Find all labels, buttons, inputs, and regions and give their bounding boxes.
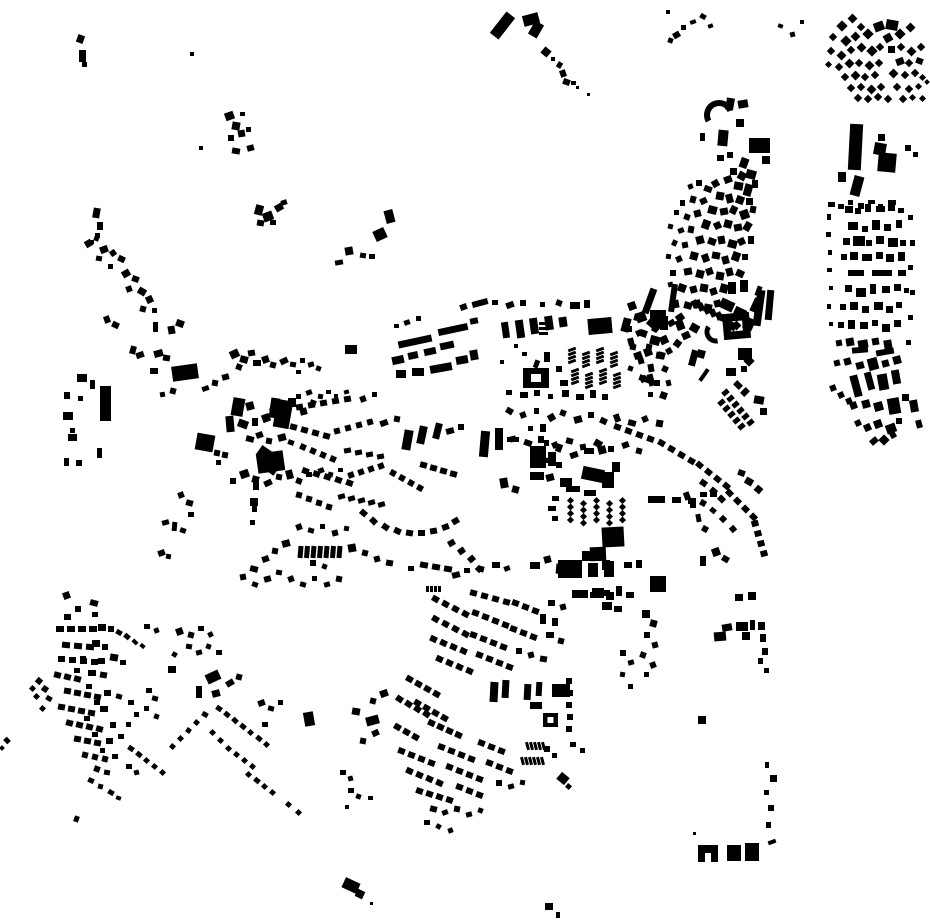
building-footprint bbox=[249, 565, 258, 573]
building-footprint bbox=[644, 672, 649, 677]
building-footprint bbox=[166, 554, 172, 560]
building-footprint bbox=[590, 390, 596, 398]
building-footprint bbox=[491, 595, 499, 603]
building-footprint bbox=[902, 394, 909, 401]
building-footprint bbox=[100, 706, 108, 712]
building-footprint bbox=[62, 642, 70, 649]
building-footprint bbox=[588, 563, 598, 577]
building-footprint bbox=[867, 357, 880, 371]
building-footprint bbox=[856, 288, 866, 297]
building-footprint bbox=[266, 438, 273, 445]
building-footprint bbox=[711, 251, 720, 259]
building-footprint bbox=[829, 286, 833, 290]
building-footprint bbox=[95, 725, 103, 733]
building-footprint bbox=[487, 743, 496, 751]
building-footprint bbox=[851, 32, 861, 42]
building-footprint bbox=[515, 320, 525, 339]
building-footprint bbox=[429, 635, 438, 643]
building-footprint bbox=[693, 209, 702, 218]
building-footprint bbox=[153, 627, 159, 633]
building-footprint bbox=[465, 667, 474, 675]
building-footprint bbox=[215, 705, 223, 713]
building-footprint bbox=[502, 598, 510, 606]
building-footprint bbox=[41, 685, 49, 693]
building-footprint bbox=[445, 763, 454, 771]
building-footprint bbox=[764, 790, 769, 795]
building-footprint bbox=[455, 783, 464, 791]
building-footprint bbox=[847, 84, 855, 92]
building-footprint bbox=[853, 236, 865, 246]
building-footprint bbox=[905, 85, 913, 93]
building-footprint bbox=[459, 303, 468, 311]
building-footprint bbox=[163, 354, 171, 361]
building-footprint bbox=[315, 365, 321, 371]
building-footprint bbox=[677, 283, 687, 293]
building-footprint bbox=[828, 250, 832, 255]
building-footprint bbox=[257, 219, 265, 226]
building-footprint bbox=[172, 522, 178, 531]
building-footprint bbox=[548, 600, 555, 606]
building-footprint bbox=[300, 358, 305, 363]
building-footprint bbox=[426, 586, 429, 592]
building-footprint bbox=[425, 775, 434, 783]
building-footprint bbox=[827, 304, 831, 309]
building-footprint bbox=[94, 739, 102, 746]
building-footprint bbox=[94, 693, 102, 700]
building-footprint bbox=[909, 94, 916, 101]
building-footprint bbox=[296, 403, 304, 410]
building-footprint bbox=[673, 339, 683, 349]
building-footprint bbox=[580, 748, 585, 753]
building-footprint bbox=[449, 470, 457, 478]
building-footprint bbox=[528, 426, 533, 431]
building-footprint bbox=[727, 410, 736, 418]
building-footprint bbox=[746, 418, 755, 426]
building-footprint bbox=[614, 606, 622, 612]
building-footprint bbox=[646, 344, 653, 351]
building-footprint bbox=[125, 285, 133, 293]
building-footprint bbox=[906, 23, 916, 33]
building-footprint bbox=[447, 539, 456, 548]
building-footprint bbox=[394, 416, 401, 423]
building-footprint bbox=[64, 614, 71, 620]
building-footprint bbox=[416, 425, 428, 444]
building-footprint bbox=[379, 419, 389, 427]
building-footprint bbox=[855, 208, 861, 214]
building-footprint bbox=[438, 586, 441, 592]
building-footprint bbox=[245, 401, 255, 411]
building-footprint bbox=[135, 351, 145, 359]
building-footprint bbox=[736, 119, 744, 127]
building-footprint bbox=[529, 318, 539, 335]
building-footprint bbox=[418, 530, 425, 536]
building-footprint bbox=[407, 351, 418, 360]
building-footprint bbox=[701, 253, 710, 263]
building-footprint bbox=[666, 254, 672, 260]
building-footprint bbox=[693, 832, 696, 835]
building-footprint bbox=[35, 677, 43, 685]
building-footprint bbox=[435, 655, 444, 663]
building-footprint bbox=[829, 322, 833, 326]
building-footprint bbox=[76, 460, 82, 466]
building-footprint bbox=[644, 632, 650, 638]
building-footprint bbox=[434, 586, 437, 592]
building-footprint bbox=[406, 529, 414, 536]
building-footprint bbox=[344, 526, 350, 532]
building-footprint bbox=[465, 811, 472, 817]
building-footprint bbox=[855, 59, 863, 67]
building-footprint bbox=[252, 504, 257, 512]
building-footprint bbox=[414, 680, 423, 689]
building-footprint bbox=[567, 516, 574, 523]
building-footprint bbox=[415, 787, 424, 795]
building-footprint bbox=[707, 23, 713, 28]
building-footprint bbox=[540, 424, 546, 432]
building-footprint bbox=[865, 61, 875, 71]
building-footprint bbox=[109, 653, 118, 661]
building-footprint bbox=[695, 460, 704, 469]
building-footprint bbox=[345, 345, 357, 354]
building-footprint bbox=[318, 394, 324, 400]
building-footprint bbox=[347, 543, 356, 552]
building-footprint bbox=[169, 743, 176, 750]
building-footprint bbox=[719, 283, 729, 294]
building-footprint bbox=[432, 422, 443, 439]
building-footprint bbox=[77, 374, 87, 382]
building-footprint bbox=[733, 380, 743, 390]
building-footprint bbox=[908, 315, 913, 320]
building-footprint bbox=[715, 191, 724, 200]
building-footprint bbox=[744, 476, 754, 486]
building-footprint bbox=[126, 764, 132, 769]
building-footprint bbox=[285, 469, 294, 480]
building-footprint bbox=[465, 787, 474, 795]
building-footprint bbox=[479, 431, 490, 458]
building-footprint bbox=[540, 302, 545, 307]
building-footprint bbox=[758, 622, 765, 630]
building-footprint bbox=[507, 783, 514, 789]
building-footprint bbox=[249, 763, 256, 770]
building-footprint bbox=[711, 853, 718, 862]
building-footprint bbox=[160, 392, 166, 398]
building-footprint bbox=[92, 207, 101, 218]
building-footprint bbox=[800, 20, 804, 24]
building-footprint bbox=[741, 366, 747, 372]
building-footprint bbox=[100, 748, 105, 753]
building-footprint bbox=[530, 472, 544, 480]
building-footprint bbox=[439, 341, 454, 351]
building-footprint bbox=[369, 697, 376, 704]
building-footprint bbox=[760, 408, 767, 415]
building-footprint bbox=[325, 503, 332, 510]
building-footprint bbox=[201, 385, 209, 392]
building-footprint bbox=[548, 506, 556, 511]
building-footprint bbox=[885, 423, 897, 435]
building-footprint bbox=[881, 359, 890, 368]
building-footprint bbox=[552, 516, 558, 521]
building-footprint bbox=[139, 305, 146, 312]
building-footprint bbox=[479, 635, 488, 643]
building-footprint bbox=[240, 574, 247, 581]
building-footprint bbox=[670, 270, 676, 276]
building-footprint bbox=[321, 563, 327, 569]
building-footprint bbox=[84, 691, 92, 698]
building-footprint bbox=[888, 46, 895, 53]
building-footprint bbox=[789, 31, 795, 37]
building-footprint bbox=[304, 546, 310, 558]
building-footprint bbox=[699, 479, 708, 488]
building-footprint bbox=[874, 93, 882, 101]
building-footprint bbox=[619, 503, 626, 510]
building-footprint bbox=[127, 745, 135, 753]
building-footprint bbox=[267, 705, 274, 711]
building-footprint bbox=[100, 386, 111, 421]
building-footprint bbox=[58, 703, 66, 710]
building-footprint bbox=[440, 714, 449, 723]
building-footprint bbox=[745, 843, 759, 861]
building-footprint bbox=[285, 801, 292, 808]
building-footprint bbox=[874, 302, 883, 310]
building-footprint bbox=[289, 423, 297, 431]
figure-ground-map bbox=[0, 0, 930, 924]
building-footprint bbox=[256, 450, 286, 474]
building-footprint bbox=[719, 515, 727, 523]
building-footprint bbox=[829, 384, 837, 392]
building-footprint bbox=[910, 290, 915, 295]
building-footprint bbox=[760, 634, 766, 642]
building-footprint bbox=[123, 633, 131, 641]
building-footprint bbox=[367, 465, 375, 473]
building-footprint bbox=[100, 671, 108, 678]
building-footprint bbox=[567, 714, 573, 720]
building-footprint bbox=[907, 47, 917, 57]
building-footprint bbox=[848, 320, 855, 329]
building-footprint bbox=[624, 427, 633, 435]
building-footprint bbox=[459, 647, 468, 655]
building-footprint bbox=[765, 762, 769, 768]
building-footprint bbox=[396, 370, 406, 378]
building-footprint bbox=[627, 659, 634, 665]
building-footprint bbox=[245, 771, 252, 778]
building-footprint bbox=[843, 357, 852, 366]
building-footprint bbox=[628, 684, 633, 689]
building-footprint bbox=[347, 495, 355, 502]
building-footprint bbox=[187, 631, 194, 638]
building-footprint bbox=[751, 520, 759, 528]
building-footprint bbox=[295, 523, 303, 531]
building-footprint bbox=[715, 271, 724, 280]
building-footprint bbox=[908, 215, 913, 220]
building-footprint bbox=[760, 550, 768, 558]
building-footprint bbox=[56, 626, 64, 632]
building-footprint bbox=[87, 777, 95, 784]
building-footprint bbox=[862, 226, 868, 232]
building-footprint bbox=[539, 327, 548, 330]
building-footprint bbox=[505, 407, 514, 416]
building-footprint bbox=[878, 134, 885, 141]
building-footprint bbox=[573, 415, 583, 424]
building-footprint bbox=[854, 419, 862, 427]
building-footprint bbox=[845, 337, 854, 346]
building-footprint bbox=[279, 357, 289, 366]
building-footprint bbox=[109, 249, 117, 257]
building-footprint bbox=[854, 94, 862, 102]
building-footprint bbox=[499, 643, 508, 651]
building-footprint bbox=[135, 751, 143, 759]
building-footprint bbox=[502, 680, 510, 698]
building-footprint bbox=[262, 722, 268, 727]
building-footprint bbox=[102, 644, 108, 650]
building-footprint bbox=[435, 779, 444, 787]
building-footprint bbox=[707, 237, 717, 246]
building-footprint bbox=[96, 256, 103, 262]
building-footprint bbox=[543, 555, 552, 564]
building-footprint bbox=[606, 506, 613, 513]
building-footprint bbox=[74, 668, 80, 673]
building-footprint bbox=[79, 50, 86, 62]
building-footprint bbox=[915, 57, 924, 65]
building-footprint bbox=[439, 467, 447, 475]
building-footprint bbox=[290, 362, 297, 368]
building-footprint bbox=[522, 352, 527, 356]
building-footprint bbox=[545, 473, 555, 482]
building-footprint bbox=[749, 138, 770, 153]
building-footprint bbox=[457, 547, 466, 556]
building-footprint bbox=[153, 713, 159, 719]
building-footprint bbox=[118, 734, 124, 739]
building-footprint bbox=[584, 448, 594, 454]
building-footprint bbox=[68, 434, 77, 441]
building-footprint bbox=[263, 741, 270, 748]
building-footprint bbox=[713, 221, 722, 230]
building-footprint bbox=[519, 629, 528, 637]
building-footprint bbox=[505, 301, 515, 309]
building-footprint bbox=[559, 409, 567, 417]
building-footprint bbox=[344, 447, 352, 453]
building-footprint bbox=[827, 214, 831, 220]
building-footprint bbox=[97, 783, 103, 789]
building-footprint bbox=[861, 399, 871, 409]
building-footprint bbox=[309, 447, 317, 455]
building-footprint bbox=[717, 130, 728, 147]
building-footprint bbox=[198, 626, 204, 631]
building-footprint bbox=[485, 759, 494, 767]
building-footprint bbox=[64, 392, 70, 399]
building-footprint bbox=[659, 335, 670, 346]
building-footprint bbox=[412, 368, 424, 376]
building-footprint bbox=[739, 209, 751, 221]
building-footprint bbox=[898, 252, 905, 261]
building-footprint bbox=[239, 723, 247, 731]
building-footprint bbox=[689, 19, 696, 25]
building-footprint bbox=[863, 423, 872, 432]
building-footprint bbox=[272, 548, 279, 555]
building-footprint bbox=[743, 183, 754, 197]
building-footprint bbox=[848, 222, 858, 230]
building-footprint bbox=[128, 700, 134, 705]
building-footprint bbox=[29, 685, 36, 692]
building-footprint bbox=[348, 788, 354, 793]
building-footprint bbox=[230, 478, 236, 484]
building-footprint bbox=[64, 687, 72, 694]
building-footprint bbox=[565, 437, 573, 445]
building-footprint bbox=[737, 171, 748, 182]
building-footprint bbox=[682, 242, 689, 249]
building-footprint bbox=[536, 682, 543, 696]
building-footprint bbox=[877, 83, 885, 91]
building-footprint bbox=[898, 270, 906, 276]
building-footprint bbox=[606, 519, 613, 526]
building-footprint bbox=[366, 418, 373, 425]
building-footprint bbox=[345, 479, 354, 487]
building-footprint bbox=[905, 145, 911, 151]
building-footprint bbox=[735, 594, 743, 601]
building-footprint bbox=[572, 590, 588, 598]
building-footprint bbox=[469, 631, 478, 639]
building-footprint bbox=[540, 655, 548, 662]
building-footprint bbox=[689, 251, 699, 261]
building-footprint bbox=[566, 486, 580, 492]
building-footprint bbox=[112, 754, 118, 759]
building-footprint bbox=[841, 254, 847, 260]
building-footprint bbox=[92, 732, 98, 737]
building-footprint bbox=[540, 614, 546, 624]
building-footprint bbox=[250, 520, 255, 525]
building-footprint bbox=[733, 223, 742, 231]
building-footprint bbox=[919, 95, 926, 102]
building-footprint bbox=[620, 650, 626, 656]
building-footprint bbox=[865, 204, 871, 212]
building-footprint bbox=[533, 359, 540, 368]
building-footprint bbox=[836, 20, 847, 31]
building-footprint bbox=[827, 47, 835, 55]
building-footprint bbox=[90, 380, 95, 389]
building-footprint bbox=[355, 793, 361, 799]
building-footprint bbox=[439, 639, 448, 647]
building-footprint bbox=[233, 751, 240, 758]
building-footprint bbox=[567, 497, 574, 504]
building-footprint bbox=[117, 255, 126, 263]
building-footprint bbox=[913, 152, 918, 157]
building-footprint bbox=[151, 763, 158, 770]
building-footprint bbox=[665, 347, 673, 355]
building-footprint bbox=[898, 208, 904, 213]
building-footprint bbox=[431, 709, 440, 718]
building-footprint bbox=[107, 789, 115, 796]
building-footprint bbox=[360, 738, 367, 745]
building-footprint bbox=[850, 252, 858, 260]
building-footprint bbox=[248, 349, 256, 356]
building-footprint bbox=[430, 527, 438, 534]
building-footprint bbox=[557, 637, 564, 644]
building-footprint bbox=[833, 359, 840, 366]
building-footprint bbox=[357, 497, 365, 504]
building-footprint bbox=[145, 295, 154, 304]
building-footprint bbox=[372, 392, 377, 397]
building-footprint bbox=[875, 59, 883, 67]
building-footprint bbox=[884, 95, 892, 103]
building-footprint bbox=[407, 479, 415, 487]
building-footprint bbox=[735, 269, 745, 279]
building-footprint bbox=[454, 806, 461, 813]
building-footprint bbox=[909, 399, 919, 412]
building-footprint bbox=[326, 390, 331, 394]
building-footprint bbox=[762, 648, 768, 655]
building-footprint bbox=[737, 99, 748, 109]
building-footprint bbox=[431, 595, 440, 604]
building-footprint bbox=[82, 62, 87, 67]
building-footprint bbox=[599, 417, 608, 425]
